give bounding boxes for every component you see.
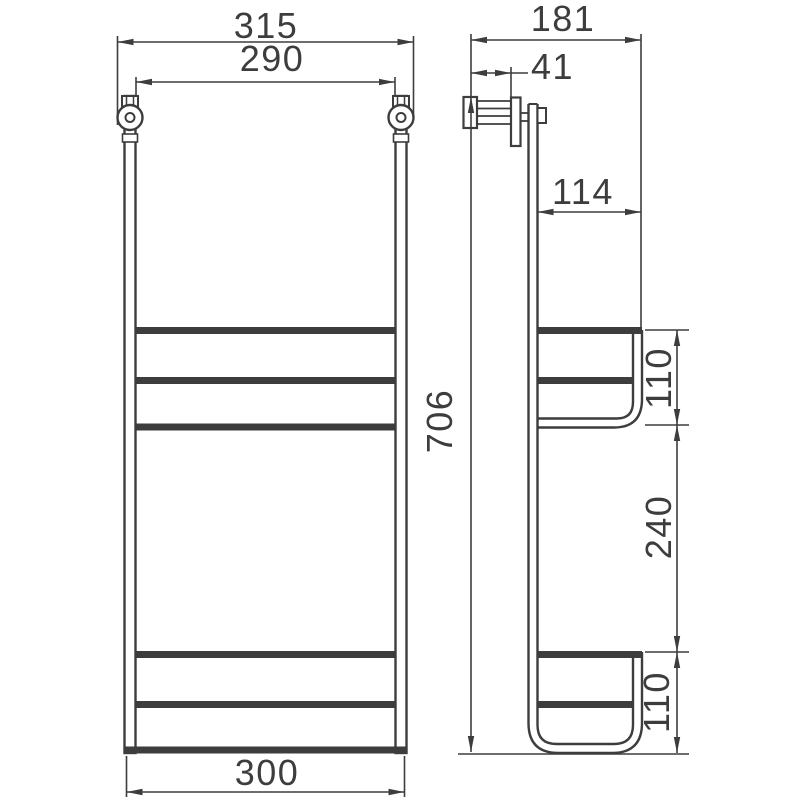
front-view [118,96,414,754]
dim-basket-spacing-label: 240 [638,495,679,560]
dim-bracket-offset: 41 [471,46,574,97]
drawing-sheet: 315 290 300 706 181 [0,0,800,800]
screw-right [397,113,406,122]
dim-total-depth-label: 181 [531,0,596,39]
dim-bracket-offset-label: 41 [531,46,574,87]
side-upper-rod-1 [538,327,643,334]
bracket-flange [511,98,521,147]
side-lower-rod-2 [538,701,634,708]
dim-lower-basket-height-label: 110 [636,671,677,733]
front-left-rail [125,96,136,753]
tube-tab [538,108,547,123]
technical-drawing: 315 290 300 706 181 [0,0,800,800]
dim-basket-depth: 114 [538,171,642,212]
rail-collar-left [123,134,138,142]
dim-rail-center-width: 290 [136,38,395,96]
dim-basket-depth-label: 114 [552,171,614,212]
upper-basket-bottom-rod [135,424,396,431]
dim-rail-center-width-label: 290 [240,38,305,79]
lower-basket-rod-1 [135,651,396,658]
rail-collar-right [394,134,409,142]
dim-upper-basket-height: 110 [638,330,679,425]
upper-basket-rod-1 [135,327,396,334]
side-upper-rod-2 [538,377,634,384]
dim-total-height: 706 [419,34,471,752]
lower-basket-rod-2 [135,701,396,708]
mounting-bracket-left [118,96,143,130]
front-right-rail [396,96,407,753]
dim-upper-basket-height-label: 110 [638,347,679,409]
upper-basket-inner [538,330,634,419]
mounting-bracket-right [389,96,414,130]
side-lower-rod-1 [538,651,643,658]
upper-basket-rod-2 [135,377,396,384]
dim-bottom-width: 300 [127,752,405,797]
dim-basket-spacing: 240 [638,425,679,652]
screw-left [126,113,135,122]
dim-total-height-label: 706 [419,389,460,454]
dim-bottom-width-label: 300 [235,752,300,793]
